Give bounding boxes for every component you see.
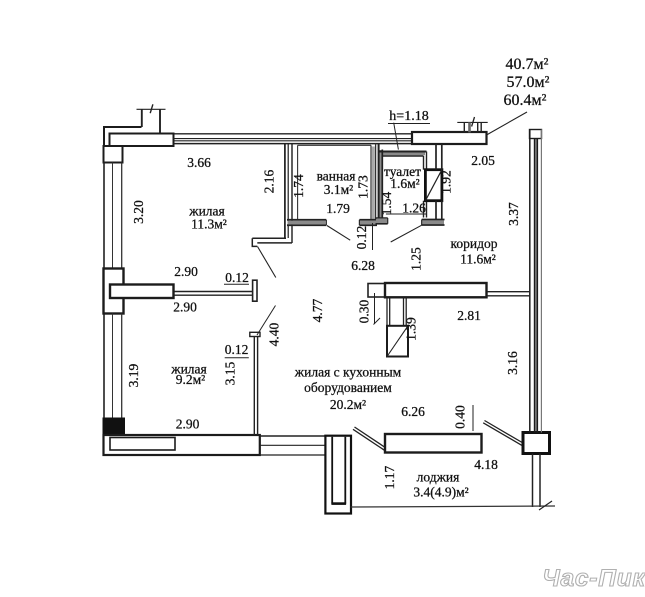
svg-text:2.81: 2.81 <box>457 308 481 323</box>
svg-text:3.15: 3.15 <box>223 361 238 385</box>
svg-text:60.4м²: 60.4м² <box>504 92 547 109</box>
svg-text:жилая с кухонным: жилая с кухонным <box>294 365 402 380</box>
svg-text:40.7м²: 40.7м² <box>506 56 549 73</box>
svg-text:1.54: 1.54 <box>379 191 394 215</box>
svg-text:2.05: 2.05 <box>471 153 495 168</box>
svg-text:1.17: 1.17 <box>382 465 397 489</box>
svg-text:3.16: 3.16 <box>505 351 520 375</box>
svg-text:11.6м²: 11.6м² <box>460 252 496 267</box>
svg-text:3.4(4.9)м²: 3.4(4.9)м² <box>413 484 468 499</box>
svg-text:0.12: 0.12 <box>225 342 249 357</box>
svg-text:1.39: 1.39 <box>404 317 419 341</box>
svg-text:1.79: 1.79 <box>326 201 350 216</box>
svg-text:1.25: 1.25 <box>409 247 424 271</box>
svg-text:h=1.18: h=1.18 <box>389 109 428 124</box>
svg-text:4.77: 4.77 <box>310 298 325 322</box>
svg-text:1.26: 1.26 <box>402 201 426 216</box>
svg-text:0.30: 0.30 <box>357 299 372 323</box>
svg-text:57.0м²: 57.0м² <box>507 74 550 91</box>
svg-text:1.74: 1.74 <box>291 174 306 198</box>
svg-text:1.92: 1.92 <box>439 170 454 194</box>
svg-text:4.40: 4.40 <box>267 322 282 346</box>
svg-text:коридор: коридор <box>451 236 498 251</box>
svg-text:3.20: 3.20 <box>131 200 146 224</box>
svg-text:лоджия: лоджия <box>417 470 460 485</box>
svg-text:11.3м²: 11.3м² <box>191 217 227 232</box>
svg-text:0.40: 0.40 <box>453 405 468 429</box>
svg-text:6.28: 6.28 <box>351 258 375 273</box>
svg-text:2.90: 2.90 <box>176 417 200 432</box>
svg-text:0.12: 0.12 <box>225 270 249 285</box>
svg-text:4.18: 4.18 <box>474 457 498 472</box>
svg-text:6.26: 6.26 <box>401 404 425 419</box>
svg-text:1.6м²: 1.6м² <box>390 176 419 191</box>
svg-text:0.12: 0.12 <box>354 226 369 250</box>
svg-text:2.90: 2.90 <box>173 300 197 315</box>
svg-text:2.90: 2.90 <box>174 264 198 279</box>
svg-text:20.2м²: 20.2м² <box>330 397 366 412</box>
svg-text:оборудованием: оборудованием <box>304 380 392 395</box>
svg-text:1.73: 1.73 <box>356 175 371 199</box>
svg-text:3.66: 3.66 <box>187 155 211 170</box>
svg-text:3.19: 3.19 <box>126 363 141 387</box>
svg-text:3.37: 3.37 <box>506 202 521 226</box>
svg-text:2.16: 2.16 <box>262 169 277 193</box>
svg-text:9.2м²: 9.2м² <box>176 372 205 387</box>
svg-text:3.1м²: 3.1м² <box>324 182 353 197</box>
svg-text:Час-Пик: Час-Пик <box>542 565 645 592</box>
